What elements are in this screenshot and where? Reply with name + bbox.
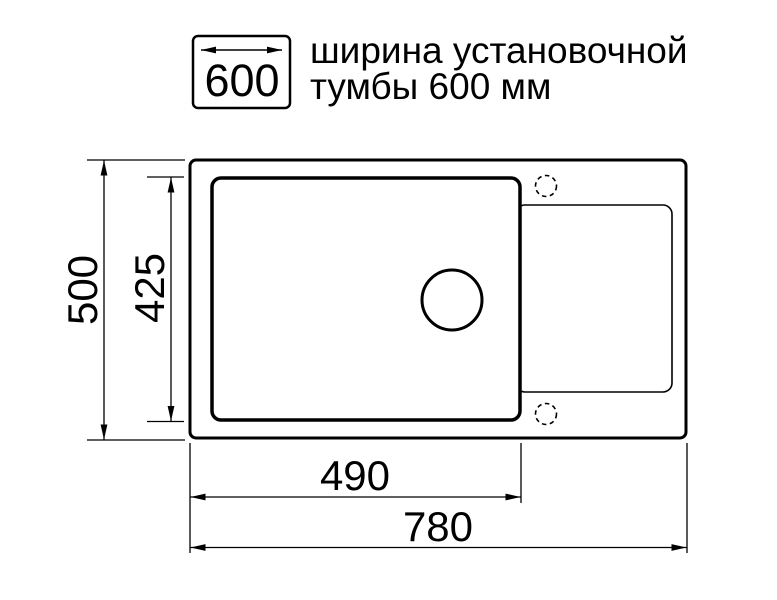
dim-500-value: 500 — [59, 255, 106, 325]
dim-780-value: 780 — [403, 503, 473, 550]
sink-plan-view — [190, 160, 686, 438]
cabinet-width-value: 600 — [204, 55, 279, 106]
sink-dimension-drawing-page: 600 ширина установочной тумбы 600 мм 500 — [0, 0, 777, 600]
cabinet-width-caption-line2: тумбы 600 мм — [310, 66, 551, 107]
tap-hole-bottom-circle — [536, 404, 557, 425]
dim-425-value: 425 — [126, 253, 173, 323]
dim-490-value: 490 — [320, 452, 390, 499]
tap-hole-top-circle — [536, 176, 557, 197]
sink-technical-drawing: 600 ширина установочной тумбы 600 мм 500 — [0, 0, 777, 600]
drain-hole-circle — [422, 270, 482, 330]
cabinet-width-legend: 600 ширина установочной тумбы 600 мм — [193, 30, 688, 108]
cabinet-width-caption-line1: ширина установочной — [310, 30, 688, 71]
drainboard-outline — [516, 205, 672, 392]
